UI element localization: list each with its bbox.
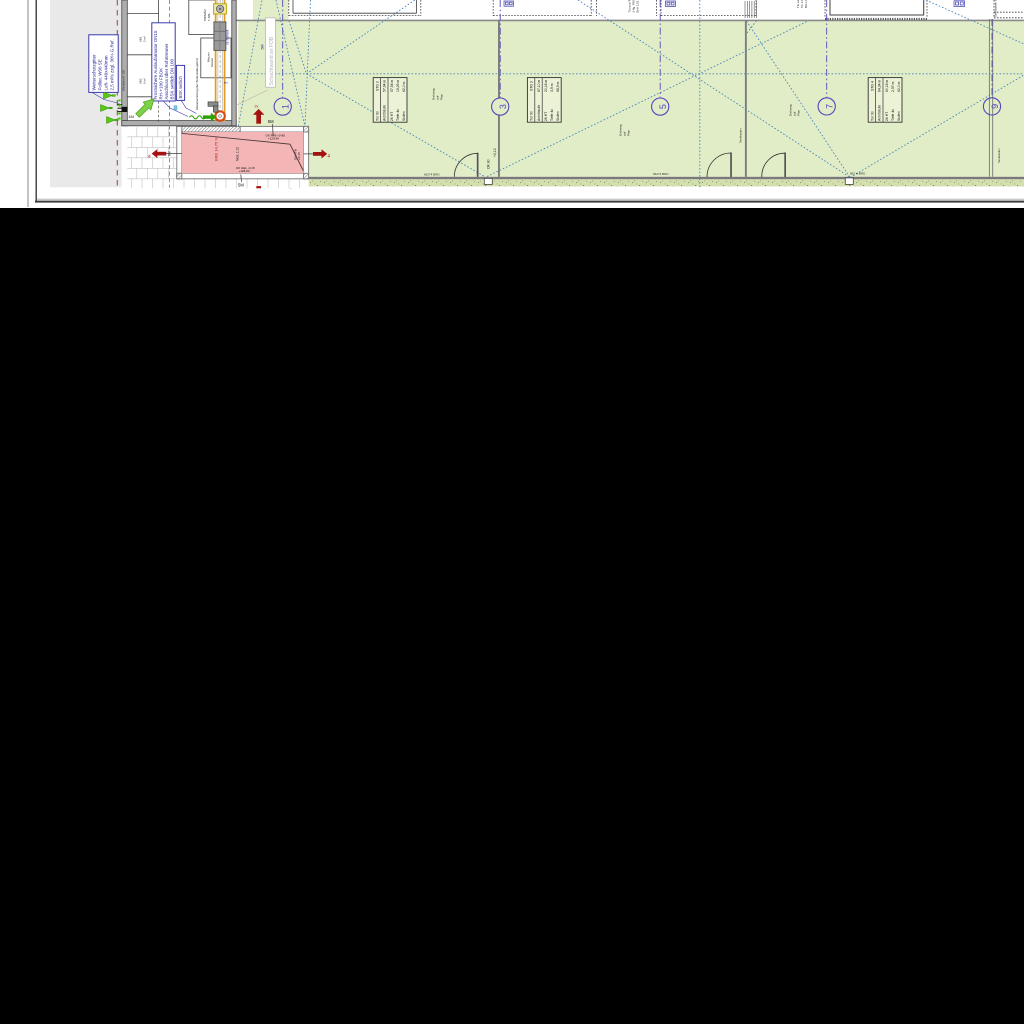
svg-text:2,97 m: 2,97 m bbox=[891, 81, 895, 92]
svg-text:BSK seitlich DN 100: BSK seitlich DN 100 bbox=[169, 58, 174, 99]
svg-text:Antrittstufe: Antrittstufe bbox=[383, 105, 387, 121]
svg-text:26 HT: 26 HT bbox=[885, 112, 889, 121]
svg-text:Stufen: Stufen bbox=[402, 111, 406, 121]
svg-text:+0-15: +0-15 bbox=[297, 152, 301, 160]
svg-text:Tiefe 4x: Tiefe 4x bbox=[396, 109, 400, 121]
svg-text:6 m²: 6 m² bbox=[143, 78, 147, 84]
svg-text:862 H-BRD: 862 H-BRD bbox=[850, 172, 866, 176]
svg-text:67,10 m: 67,10 m bbox=[537, 80, 541, 92]
svg-text:NGL 1:12: NGL 1:12 bbox=[235, 147, 239, 161]
svg-text:Mischer: Mischer bbox=[207, 52, 211, 62]
svg-text:4x: 4x bbox=[327, 154, 331, 158]
svg-text:BRE 14,75 %: BRE 14,75 % bbox=[214, 137, 219, 161]
svg-text:20,18 m: 20,18 m bbox=[544, 80, 548, 92]
svg-text:Plan: Plan bbox=[797, 110, 801, 116]
svg-text:Wetterschutzgitter: Wetterschutzgitter bbox=[91, 54, 96, 91]
svg-text:64,34 m: 64,34 m bbox=[878, 80, 882, 92]
svg-text:Abwasserleitung über Bodenplat: Abwasserleitung über Bodenplatte geführt bbox=[195, 58, 199, 110]
svg-text:57,94 m: 57,94 m bbox=[383, 80, 387, 92]
svg-text:60,18 m: 60,18 m bbox=[885, 80, 889, 92]
svg-text:66274 BRD: 66274 BRD bbox=[653, 172, 669, 176]
svg-text:26 HT: 26 HT bbox=[390, 112, 394, 121]
svg-text:5: 5 bbox=[658, 104, 668, 109]
svg-text:Tiefe 4x: Tiefe 4x bbox=[891, 109, 895, 121]
svg-text:4x: 4x bbox=[147, 154, 151, 158]
svg-text:Tiefe 4x: Tiefe 4x bbox=[550, 109, 554, 121]
svg-text:+129,40: +129,40 bbox=[268, 137, 279, 141]
svg-text:68,5 m: 68,5 m bbox=[556, 81, 560, 92]
svg-text:5M: 5M bbox=[268, 119, 274, 124]
svg-text:Frostsichere Auslaufarmatur DN: Frostsichere Auslaufarmatur DN15 bbox=[153, 30, 158, 100]
svg-text:Tür 90: Tür 90 bbox=[530, 111, 534, 121]
svg-text:62,0 m: 62,0 m bbox=[402, 81, 406, 92]
svg-text:T ABL: T ABL bbox=[207, 13, 211, 21]
svg-text:+2,12: +2,12 bbox=[493, 148, 497, 157]
svg-text:STG 3: STG 3 bbox=[530, 81, 534, 91]
svg-text:2,5 m³/s zzgl. 30% G.Ref.: 2,5 m³/s zzgl. 30% G.Ref. bbox=[109, 39, 114, 90]
svg-text:26 HT: 26 HT bbox=[544, 112, 548, 121]
svg-text:Senkkasten: Senkkasten bbox=[739, 128, 743, 143]
svg-text:62,0 m: 62,0 m bbox=[897, 81, 901, 92]
svg-text:STG 4: STG 4 bbox=[870, 81, 874, 91]
svg-text:Pollier, W90 SE: Pollier, W90 SE bbox=[97, 59, 102, 90]
svg-text:1: 1 bbox=[281, 104, 291, 109]
svg-text:BxH 1,01: BxH 1,01 bbox=[804, 0, 808, 8]
svg-text:Tür 90: Tür 90 bbox=[375, 111, 379, 121]
svg-text:BSK seitlich: BSK seitlich bbox=[178, 75, 183, 98]
svg-text:7: 7 bbox=[825, 104, 835, 109]
svg-text:Anschluss über Rohrtrenner: Anschluss über Rohrtrenner bbox=[164, 43, 169, 100]
svg-text:Stufen: Stufen bbox=[897, 111, 901, 121]
svg-text:Wanddurchf. 160: Wanddurchf. 160 bbox=[122, 69, 126, 91]
svg-text:5M: 5M bbox=[261, 45, 265, 50]
svg-text:Luft- 440x440mm: Luft- 440x440mm bbox=[103, 55, 108, 90]
svg-text:Antrittstufe: Antrittstufe bbox=[537, 105, 541, 121]
svg-text:Plan: Plan bbox=[440, 94, 444, 100]
svg-text:Stufen: Stufen bbox=[556, 111, 560, 121]
svg-text:BxH 2,01: BxH 2,01 bbox=[636, 0, 640, 12]
svg-text:9: 9 bbox=[990, 104, 1000, 109]
svg-text:km: km bbox=[224, 81, 229, 85]
svg-text:Plan: Plan bbox=[627, 130, 631, 136]
svg-text:ca 3l Inhalt: ca 3l Inhalt bbox=[226, 29, 230, 45]
svg-text:5 m²: 5 m² bbox=[143, 36, 147, 42]
svg-text:+128,60: +128,60 bbox=[239, 169, 250, 173]
svg-text:Senkkasten bis: Senkkasten bis bbox=[994, 0, 998, 17]
svg-text:STG 2: STG 2 bbox=[375, 81, 379, 91]
svg-text:5M: 5M bbox=[238, 183, 244, 188]
svg-text:Antrittstufe: Antrittstufe bbox=[878, 105, 882, 121]
svg-text:3,9 m: 3,9 m bbox=[550, 83, 554, 92]
svg-text:Schachtwand an FOB: Schachtwand an FOB bbox=[269, 36, 275, 85]
svg-text:Tür 90: Tür 90 bbox=[870, 111, 874, 121]
svg-text:2x: 2x bbox=[255, 104, 259, 108]
svg-text:66274 BRD: 66274 BRD bbox=[424, 173, 440, 177]
svg-text:19,26 m: 19,26 m bbox=[396, 80, 400, 92]
svg-text:3: 3 bbox=[498, 104, 508, 109]
svg-text:OK 80: OK 80 bbox=[487, 159, 491, 169]
svg-text:57,54 m: 57,54 m bbox=[390, 80, 394, 92]
svg-text:RH-+100 FBOK: RH-+100 FBOK bbox=[158, 68, 163, 100]
svg-text:Kessel: Kessel bbox=[210, 58, 214, 67]
svg-text:1M: 1M bbox=[128, 114, 134, 119]
svg-text:Senkkasten: Senkkasten bbox=[997, 148, 1001, 163]
